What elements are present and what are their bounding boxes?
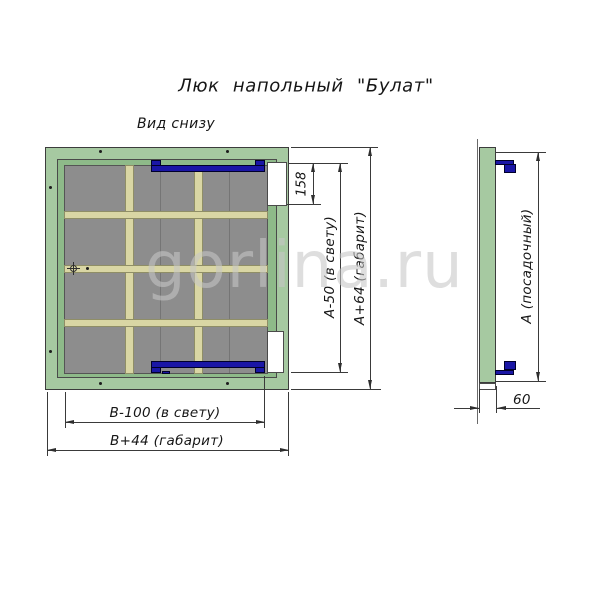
arrow-icon (536, 152, 540, 161)
horizontal-rib (64, 211, 268, 219)
arrow-icon (311, 195, 315, 204)
screw-dot (99, 150, 102, 153)
horizontal-rib (64, 319, 268, 327)
arrow-icon (338, 163, 342, 172)
dim-text-a-overall: А+64 (габарит) (352, 211, 368, 325)
hinge-foot (151, 367, 161, 373)
screw-dot (49, 350, 52, 353)
screw-dot (99, 382, 102, 385)
extension-line (495, 381, 546, 382)
side-frame-step (479, 383, 496, 390)
dimension-line-b-clear (65, 422, 265, 423)
screw-dot (226, 382, 229, 385)
hinge-pin (162, 371, 170, 374)
hinge-bar-bottom (151, 361, 265, 368)
arrow-icon (338, 363, 342, 372)
arrow-icon (368, 380, 372, 389)
dimension-line-a-clear (340, 163, 341, 372)
hinge-cutout-bottom (267, 331, 284, 373)
screw-dot (49, 186, 52, 189)
drawing-sheet: Люк напольный "Булат" Вид снизу (0, 0, 600, 600)
dimension-line-a-seat (538, 152, 539, 381)
arrow-icon (65, 420, 74, 424)
dim-text-a-seat: А (посадочный) (519, 209, 535, 324)
dimension-line-b-overall (47, 450, 289, 451)
view-label-bottom: Вид снизу (137, 116, 215, 132)
extension-line (47, 392, 48, 456)
dim-text-b-clear: В-100 (в свету) (109, 405, 220, 421)
extension-line (288, 392, 289, 456)
dimension-line-a-overall (370, 147, 371, 389)
screw-dot (86, 267, 89, 270)
horizontal-rib (64, 265, 268, 273)
extension-line (291, 372, 348, 373)
side-datum-line (477, 139, 478, 424)
hinge-bar-top (151, 165, 265, 172)
extension-line (291, 147, 378, 148)
arrow-icon (368, 147, 372, 156)
extension-line (479, 389, 480, 413)
arrow-icon (497, 406, 506, 410)
arrow-icon (280, 448, 289, 452)
dim-text-158: 158 (295, 172, 310, 197)
arrow-icon (256, 420, 265, 424)
extension-line (287, 204, 321, 205)
screw-dot (226, 150, 229, 153)
side-hinge-bottom (495, 370, 514, 375)
page-title: Люк напольный "Булат" (178, 76, 434, 97)
hinge-cutout-top (267, 162, 287, 206)
side-hinge-bottom-hook (504, 361, 516, 370)
arrow-icon (536, 372, 540, 381)
extension-line (291, 389, 381, 390)
center-mark-icon (67, 262, 80, 275)
arrow-icon (470, 406, 479, 410)
side-hinge-top-hook (504, 164, 516, 173)
hinge-foot (255, 367, 265, 373)
dim-text-60: 60 (513, 392, 531, 408)
arrow-icon (47, 448, 56, 452)
side-frame-profile (479, 147, 496, 383)
dim-text-b-overall: В+44 (габарит) (110, 433, 224, 449)
dim-text-a-clear: А-50 (в свету) (322, 216, 338, 318)
arrow-icon (311, 163, 315, 172)
